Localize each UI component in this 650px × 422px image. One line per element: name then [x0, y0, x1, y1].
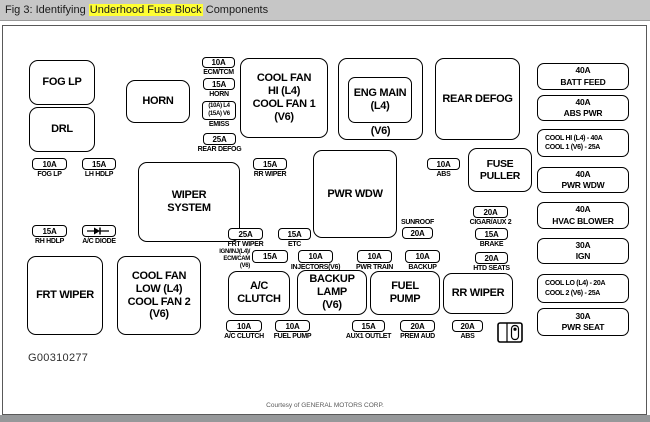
block-eng-main-outer: ENG MAIN (L4) (V6) — [338, 58, 423, 140]
block-drl: DRL — [29, 107, 95, 152]
maxifuse-abs-pwr: 40A ABS PWR — [537, 95, 629, 121]
fuse-brake: 15A BRAKE — [475, 228, 508, 240]
block-backup-lamp: BACKUP LAMP (V6) — [297, 270, 367, 315]
fuse-label: IGN/INJ(L4)/ ECM/CAM (V6) — [219, 249, 250, 271]
fuse-amp: 15A — [278, 228, 311, 240]
block-fuse-puller: FUSE PULLER — [468, 148, 532, 192]
fuse-amp: (10A) L4 (15A) V6 — [202, 101, 236, 120]
figure-title-suffix: Components — [203, 4, 268, 16]
maxifuse-amp: 30A — [576, 240, 591, 251]
maxifuse-pwr-seat: 30A PWR SEAT — [537, 308, 629, 336]
fuse-rear-defog: 25A REAR DEFOG — [203, 133, 236, 145]
fuse-label: EMISS — [209, 121, 229, 128]
fuse-cigar-aux2: 20A CIGAR/AUX 2 — [473, 206, 508, 218]
maxifuse-pwr-wdw: 40A PWR WDW — [537, 167, 629, 193]
maxifuse-label: HVAC BLOWER — [552, 216, 613, 227]
fuse-amp: 20A — [473, 206, 508, 218]
fuse-label: HTD SEATS — [473, 265, 509, 272]
eng-main-v6-label: (V6) — [339, 125, 422, 138]
fuse-amp: 10A — [427, 158, 460, 170]
fuse-label: FUEL PUMP — [274, 333, 312, 340]
fuse-label: RR WIPER — [254, 171, 287, 178]
fuse-label: FOG LP — [37, 171, 61, 178]
fuse-label: CIGAR/AUX 2 — [470, 219, 512, 226]
maxifuse-label: BATT FEED — [560, 77, 605, 88]
fuse-prem-aud: 20A PREM AUD — [400, 320, 435, 332]
fuse-injectors-v6: 10A INJECTORS(V6) — [298, 250, 333, 263]
fuse-amp: 10A — [275, 320, 310, 332]
fuse-label: HORN — [209, 91, 228, 98]
block-ac-clutch: A/C CLUTCH — [228, 271, 290, 315]
fuse-amp: 10A — [298, 250, 333, 263]
maxifuse-amp: 30A — [576, 311, 591, 322]
fuse-amp: 10A — [202, 57, 235, 68]
maxifuse-amp: 40A — [576, 65, 591, 76]
fuse-abs-bottom: 20A ABS — [452, 320, 483, 332]
block-wiper-system: WIPER SYSTEM — [138, 162, 240, 242]
fuse-sunroof: 20A SUNROOF — [402, 227, 433, 239]
bottom-window-edge — [0, 415, 650, 422]
fuse-amp: 20A — [402, 227, 433, 239]
fuse-amp: 20A — [400, 320, 435, 332]
fuse-amp: 15A — [203, 78, 235, 90]
fuse-etc: 15A ETC — [278, 228, 311, 240]
fuse-htd-seats: 20A HTD SEATS — [475, 252, 508, 264]
maxifuse-cool-hi: COOL HI (L4) - 40A COOL 1 (V6) - 25A — [537, 129, 629, 157]
block-pwr-wdw: PWR WDW — [313, 150, 397, 238]
block-horn: HORN — [126, 80, 190, 123]
maxifuse-amp: 40A — [576, 204, 591, 215]
fuse-label: ABS — [461, 333, 475, 340]
maxifuse-label: PWR WDW — [562, 180, 605, 191]
fuse-rh-hdlp: 15A RH HDLP — [32, 225, 67, 237]
fuse-horn: 15A HORN — [203, 78, 235, 90]
fuse-amp: 15A — [82, 158, 116, 170]
fuse-label: RH HDLP — [35, 238, 64, 245]
relay-icon — [497, 322, 523, 348]
fuse-frt-wiper: 25A FRT WIPER — [228, 228, 263, 240]
fuse-rr-wiper: 15A RR WIPER — [253, 158, 287, 170]
maxifuse-ign: 30A IGN — [537, 238, 629, 264]
maxifuse-line1: COOL LO (L4) - 20A — [545, 279, 605, 288]
fuse-amp: 15A — [352, 320, 385, 332]
fuse-block-figure: Fig 3: Identifying Underhood Fuse Block … — [0, 0, 650, 422]
fuse-amp: 20A — [452, 320, 483, 332]
fuse-label: PWR TRAIN — [356, 264, 393, 271]
block-fuel-pump: FUEL PUMP — [370, 271, 440, 315]
maxifuse-amp: 40A — [576, 97, 591, 108]
fuse-amp: 25A — [203, 133, 236, 145]
maxifuse-label: PWR SEAT — [562, 322, 605, 333]
maxifuse-label: IGN — [576, 251, 591, 262]
courtesy-note: Courtesy of GENERAL MOTORS CORP. — [0, 402, 650, 409]
fuse-ac-clutch: 10A A/C CLUTCH — [226, 320, 262, 332]
fuse-label: ETC — [288, 241, 301, 248]
maxifuse-line2: COOL 1 (V6) - 25A — [545, 143, 600, 152]
fuse-label: ECM/TCM — [203, 69, 234, 76]
block-cool-fan-hi: COOL FAN HI (L4) COOL FAN 1 (V6) — [240, 58, 328, 138]
fuse-label: AUX1 OUTLET — [346, 333, 391, 340]
block-eng-main-inner: ENG MAIN (L4) — [348, 77, 412, 123]
maxifuse-cool-lo: COOL LO (L4) - 20A COOL 2 (V6) - 25A — [537, 274, 629, 303]
fuse-amp: 15A — [475, 228, 508, 240]
fuse-amp: 10A — [226, 320, 262, 332]
block-rear-defog: REAR DEFOG — [435, 58, 520, 140]
fuse-amp: 20A — [475, 252, 508, 264]
fuse-pwr-train: 10A PWR TRAIN — [357, 250, 392, 263]
figure-title-bar: Fig 3: Identifying Underhood Fuse Block … — [0, 0, 650, 21]
fuse-abs-top: 10A ABS — [427, 158, 460, 170]
fuse-label: FRT WIPER — [228, 241, 264, 248]
fuse-ecm-tcm: 10A ECM/TCM — [202, 57, 235, 68]
fuse-label: PREM AUD — [400, 333, 435, 340]
fuse-label: A/C CLUTCH — [224, 333, 264, 340]
maxifuse-line2: COOL 2 (V6) - 25A — [545, 289, 600, 298]
fuse-amp: 25A — [228, 228, 263, 240]
fuse-label: REAR DEFOG — [198, 146, 242, 153]
figure-title-prefix: Fig 3: Identifying — [5, 4, 89, 16]
fuse-label: INJECTORS(V6) — [291, 264, 340, 271]
figure-reference-code: G00310277 — [28, 352, 88, 364]
maxifuse-batt-feed: 40A BATT FEED — [537, 63, 629, 90]
fuse-amp: 15A — [253, 158, 287, 170]
diode-icon — [82, 225, 116, 237]
fuse-label: BACKUP — [408, 264, 436, 271]
block-cool-fan-low: COOL FAN LOW (L4) COOL FAN 2 (V6) — [117, 256, 201, 335]
fuse-amp: 15A — [252, 250, 288, 263]
fuse-label: LH HDLP — [85, 171, 113, 178]
fuse-amp: 10A — [357, 250, 392, 263]
fuse-ac-diode: A/C DIODE — [82, 225, 116, 237]
block-rr-wiper: RR WIPER — [443, 273, 513, 314]
fuse-label: SUNROOF — [401, 219, 434, 226]
fuse-ign-inj: 15A IGN/INJ(L4)/ ECM/CAM (V6) — [252, 250, 288, 263]
fuse-label: BRAKE — [480, 241, 503, 248]
fuse-amp: 15A — [32, 225, 67, 237]
fuse-amp: 10A — [405, 250, 440, 263]
maxifuse-label: ABS PWR — [564, 108, 603, 119]
fuse-emiss: (10A) L4 (15A) V6 EMISS — [202, 101, 236, 120]
fuse-amp: 10A — [32, 158, 67, 170]
block-frt-wiper: FRT WIPER — [27, 256, 103, 335]
fuse-label: A/C DIODE — [82, 238, 115, 245]
block-fog-lp: FOG LP — [29, 60, 95, 105]
maxifuse-amp: 40A — [576, 169, 591, 180]
fuse-label: ABS — [437, 171, 451, 178]
maxifuse-hvac-blower: 40A HVAC BLOWER — [537, 202, 629, 229]
fuse-backup: 10A BACKUP — [405, 250, 440, 263]
fuse-lh-hdlp: 15A LH HDLP — [82, 158, 116, 170]
fuse-fuel-pump: 10A FUEL PUMP — [275, 320, 310, 332]
figure-title-highlight: Underhood Fuse Block — [89, 4, 203, 16]
maxifuse-line1: COOL HI (L4) - 40A — [545, 134, 602, 143]
fuse-fog-lp: 10A FOG LP — [32, 158, 67, 170]
fuse-aux1-outlet: 15A AUX1 OUTLET — [352, 320, 385, 332]
